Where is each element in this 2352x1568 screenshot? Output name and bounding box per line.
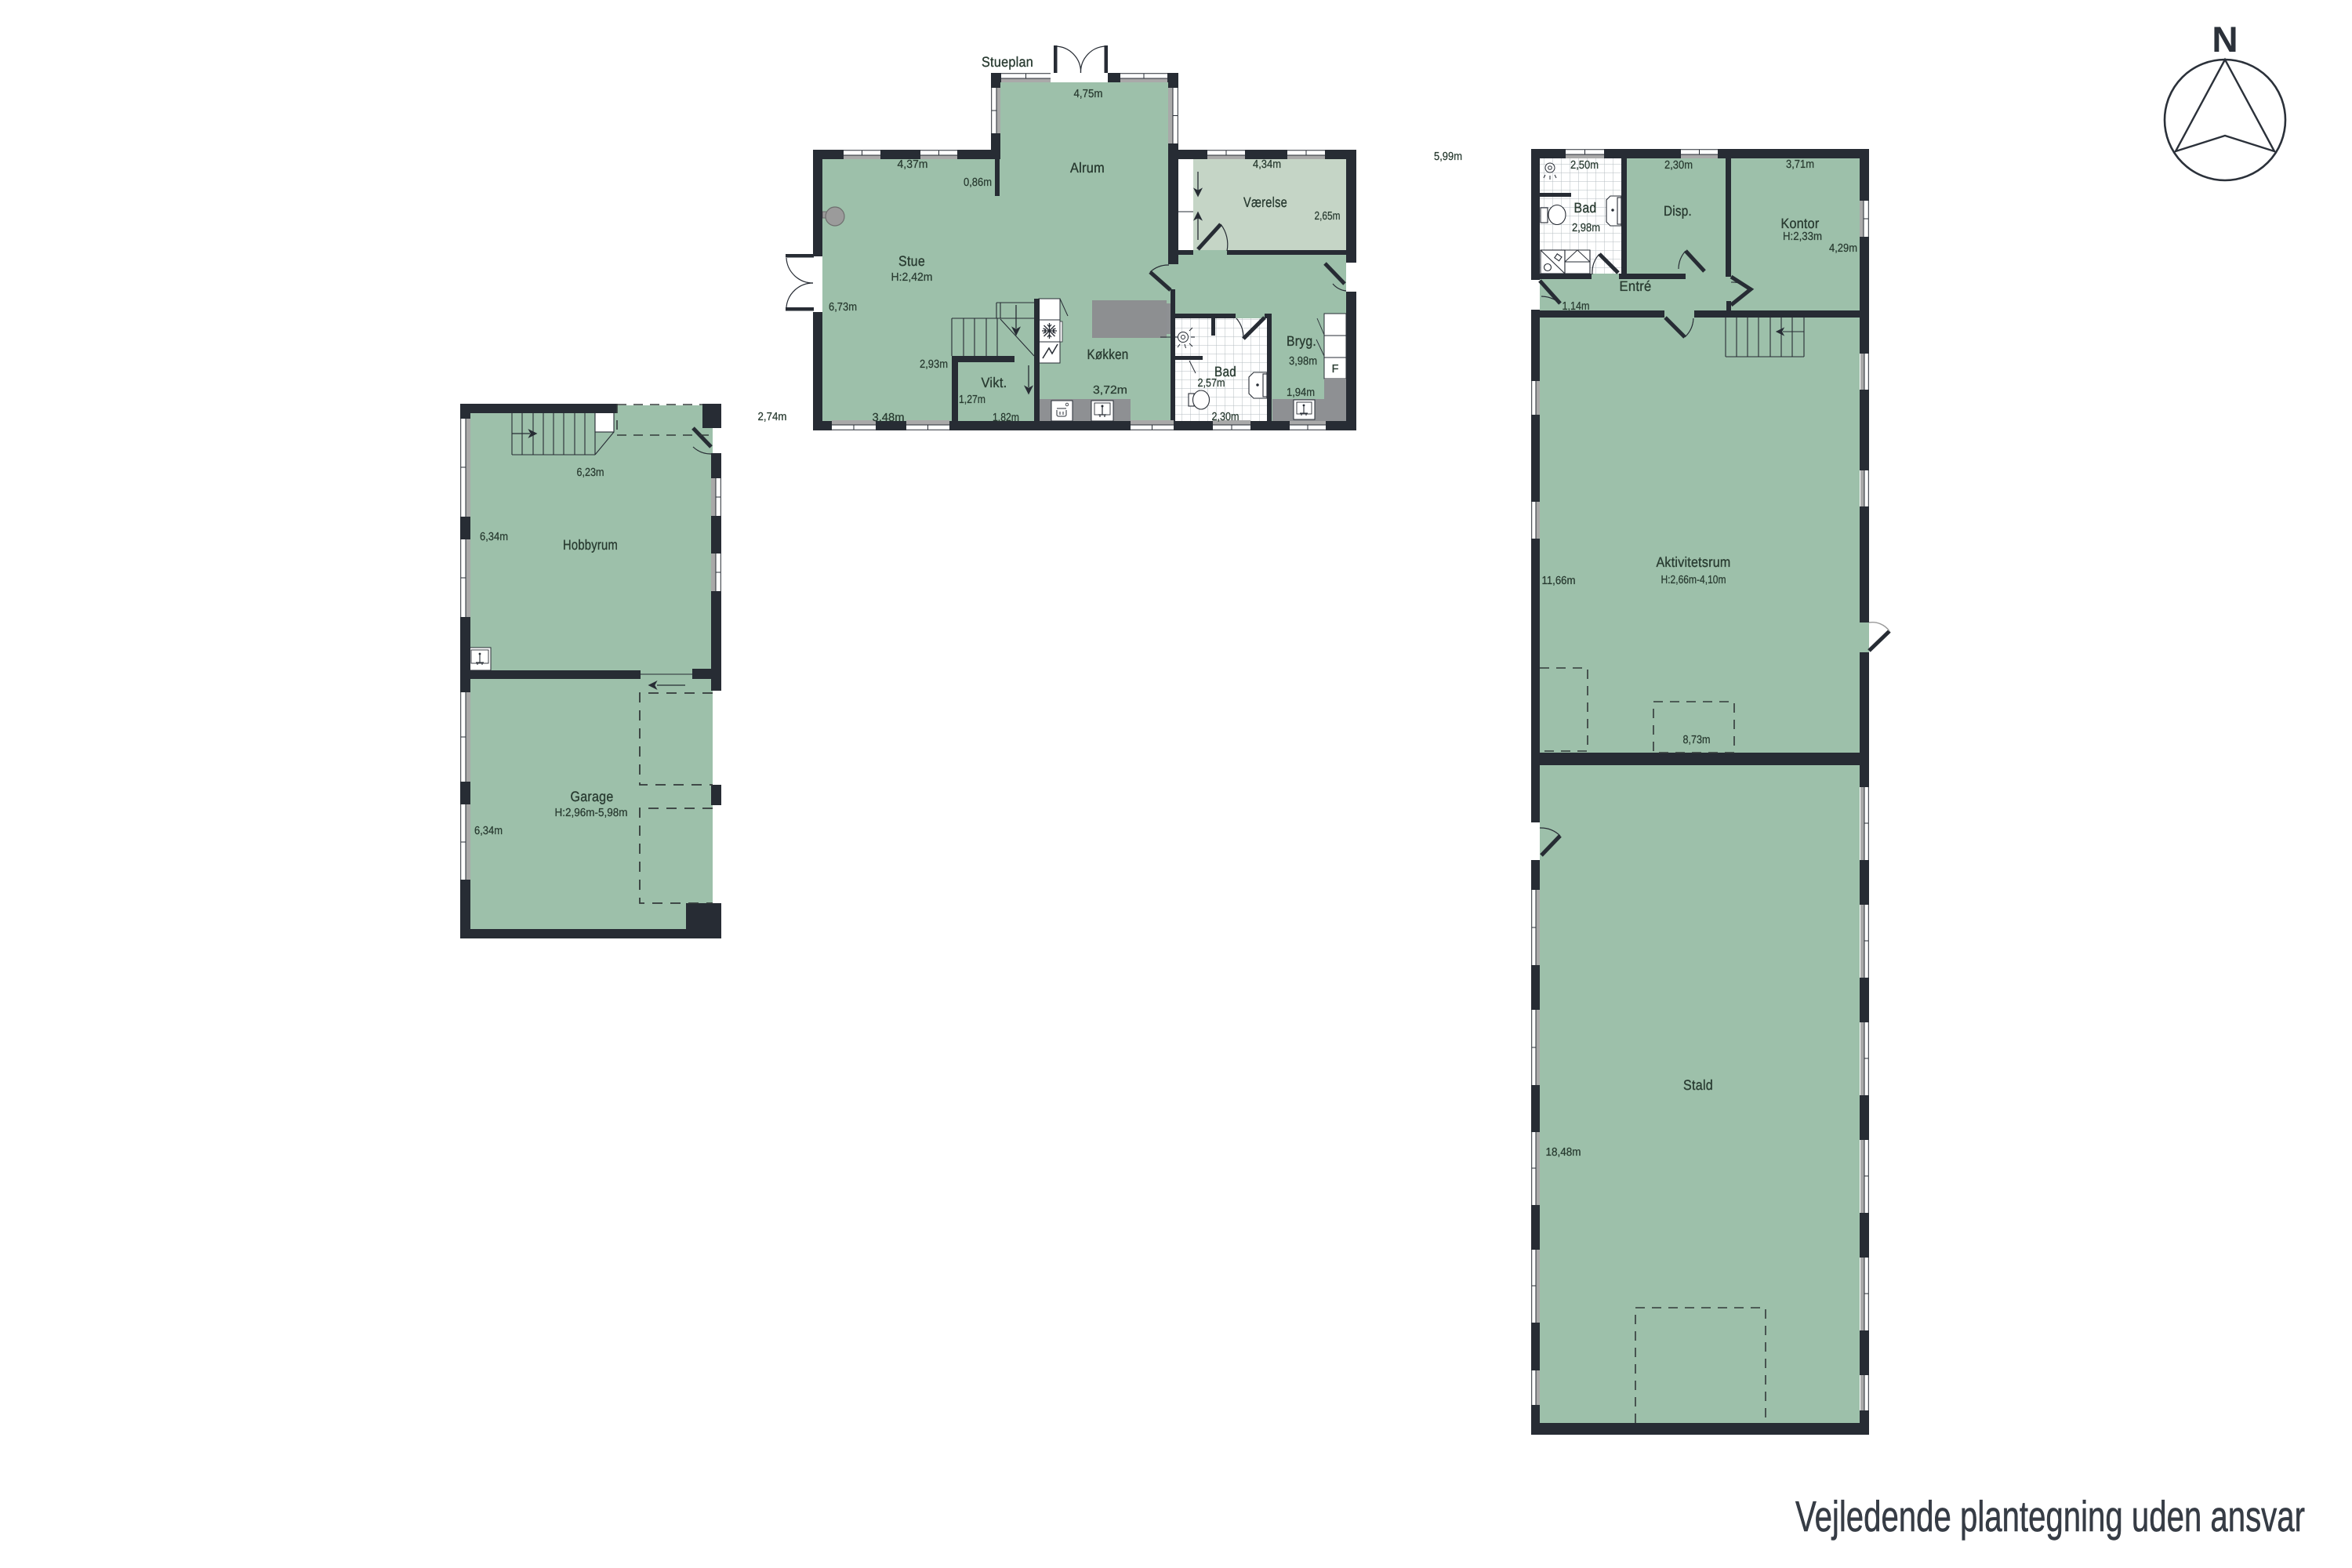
svg-text:5,99m: 5,99m: [1434, 151, 1462, 163]
svg-text:6,34m: 6,34m: [474, 825, 503, 837]
svg-text:4,34m: 4,34m: [1253, 158, 1281, 171]
svg-text:Værelse: Værelse: [1243, 194, 1287, 210]
svg-text:1,82m: 1,82m: [993, 412, 1019, 424]
svg-text:Alrum: Alrum: [1070, 160, 1105, 176]
svg-text:2,30m: 2,30m: [1664, 159, 1693, 172]
svg-text:18,48m: 18,48m: [1546, 1146, 1581, 1159]
svg-text:6,73m: 6,73m: [829, 301, 857, 314]
svg-text:Disp.: Disp.: [1664, 203, 1692, 219]
svg-text:4,75m: 4,75m: [1074, 88, 1103, 100]
svg-text:2,98m: 2,98m: [1572, 222, 1600, 234]
svg-text:H:2,42m: H:2,42m: [891, 271, 933, 284]
svg-text:F: F: [1332, 363, 1339, 376]
svg-text:3,48m: 3,48m: [873, 412, 905, 424]
svg-text:2,93m: 2,93m: [920, 358, 948, 371]
svg-text:Entré: Entré: [1620, 278, 1652, 294]
svg-text:Hobbyrum: Hobbyrum: [563, 537, 618, 553]
svg-text:Vejledende plantegning uden an: Vejledende plantegning uden ansvar: [1795, 1492, 2305, 1541]
svg-text:6,34m: 6,34m: [480, 531, 508, 543]
svg-text:2,74m: 2,74m: [758, 411, 787, 423]
svg-text:4,29m: 4,29m: [1829, 242, 1857, 255]
svg-text:Køkken: Køkken: [1087, 347, 1129, 362]
svg-text:0,86m: 0,86m: [964, 176, 992, 189]
svg-text:Stald: Stald: [1683, 1077, 1713, 1093]
svg-text:Stueplan: Stueplan: [982, 54, 1033, 70]
svg-text:H:2,33m: H:2,33m: [1783, 230, 1822, 243]
svg-text:8,73m: 8,73m: [1683, 734, 1711, 746]
svg-text:3,71m: 3,71m: [1786, 158, 1814, 171]
svg-text:Bad: Bad: [1574, 200, 1597, 216]
svg-text:Vikt.: Vikt.: [982, 375, 1007, 390]
svg-text:2,30m: 2,30m: [1212, 411, 1240, 423]
svg-text:Bryg.: Bryg.: [1287, 333, 1316, 349]
svg-text:3,98m: 3,98m: [1289, 355, 1317, 368]
svg-text:Kontor: Kontor: [1781, 216, 1820, 231]
svg-text:N: N: [2212, 19, 2238, 60]
svg-text:H:2,96m-5,98m: H:2,96m-5,98m: [555, 807, 628, 819]
svg-text:Aktivitetsrum: Aktivitetsrum: [1657, 554, 1731, 570]
svg-text:1,94m: 1,94m: [1287, 387, 1315, 399]
svg-text:2,50m: 2,50m: [1570, 159, 1599, 172]
svg-text:2,65m: 2,65m: [1315, 210, 1341, 223]
svg-text:1,27m: 1,27m: [959, 394, 985, 406]
svg-text:Stue: Stue: [898, 253, 925, 269]
svg-text:1,14m: 1,14m: [1563, 300, 1590, 313]
svg-text:2,57m: 2,57m: [1198, 377, 1225, 390]
svg-text:Garage: Garage: [571, 789, 614, 804]
svg-text:6,23m: 6,23m: [577, 466, 604, 479]
svg-text:11,66m: 11,66m: [1542, 575, 1576, 587]
svg-text:H:2,66m-4,10m: H:2,66m-4,10m: [1661, 574, 1726, 586]
svg-text:3,72m: 3,72m: [1093, 384, 1127, 397]
svg-text:4,37m: 4,37m: [898, 158, 928, 171]
